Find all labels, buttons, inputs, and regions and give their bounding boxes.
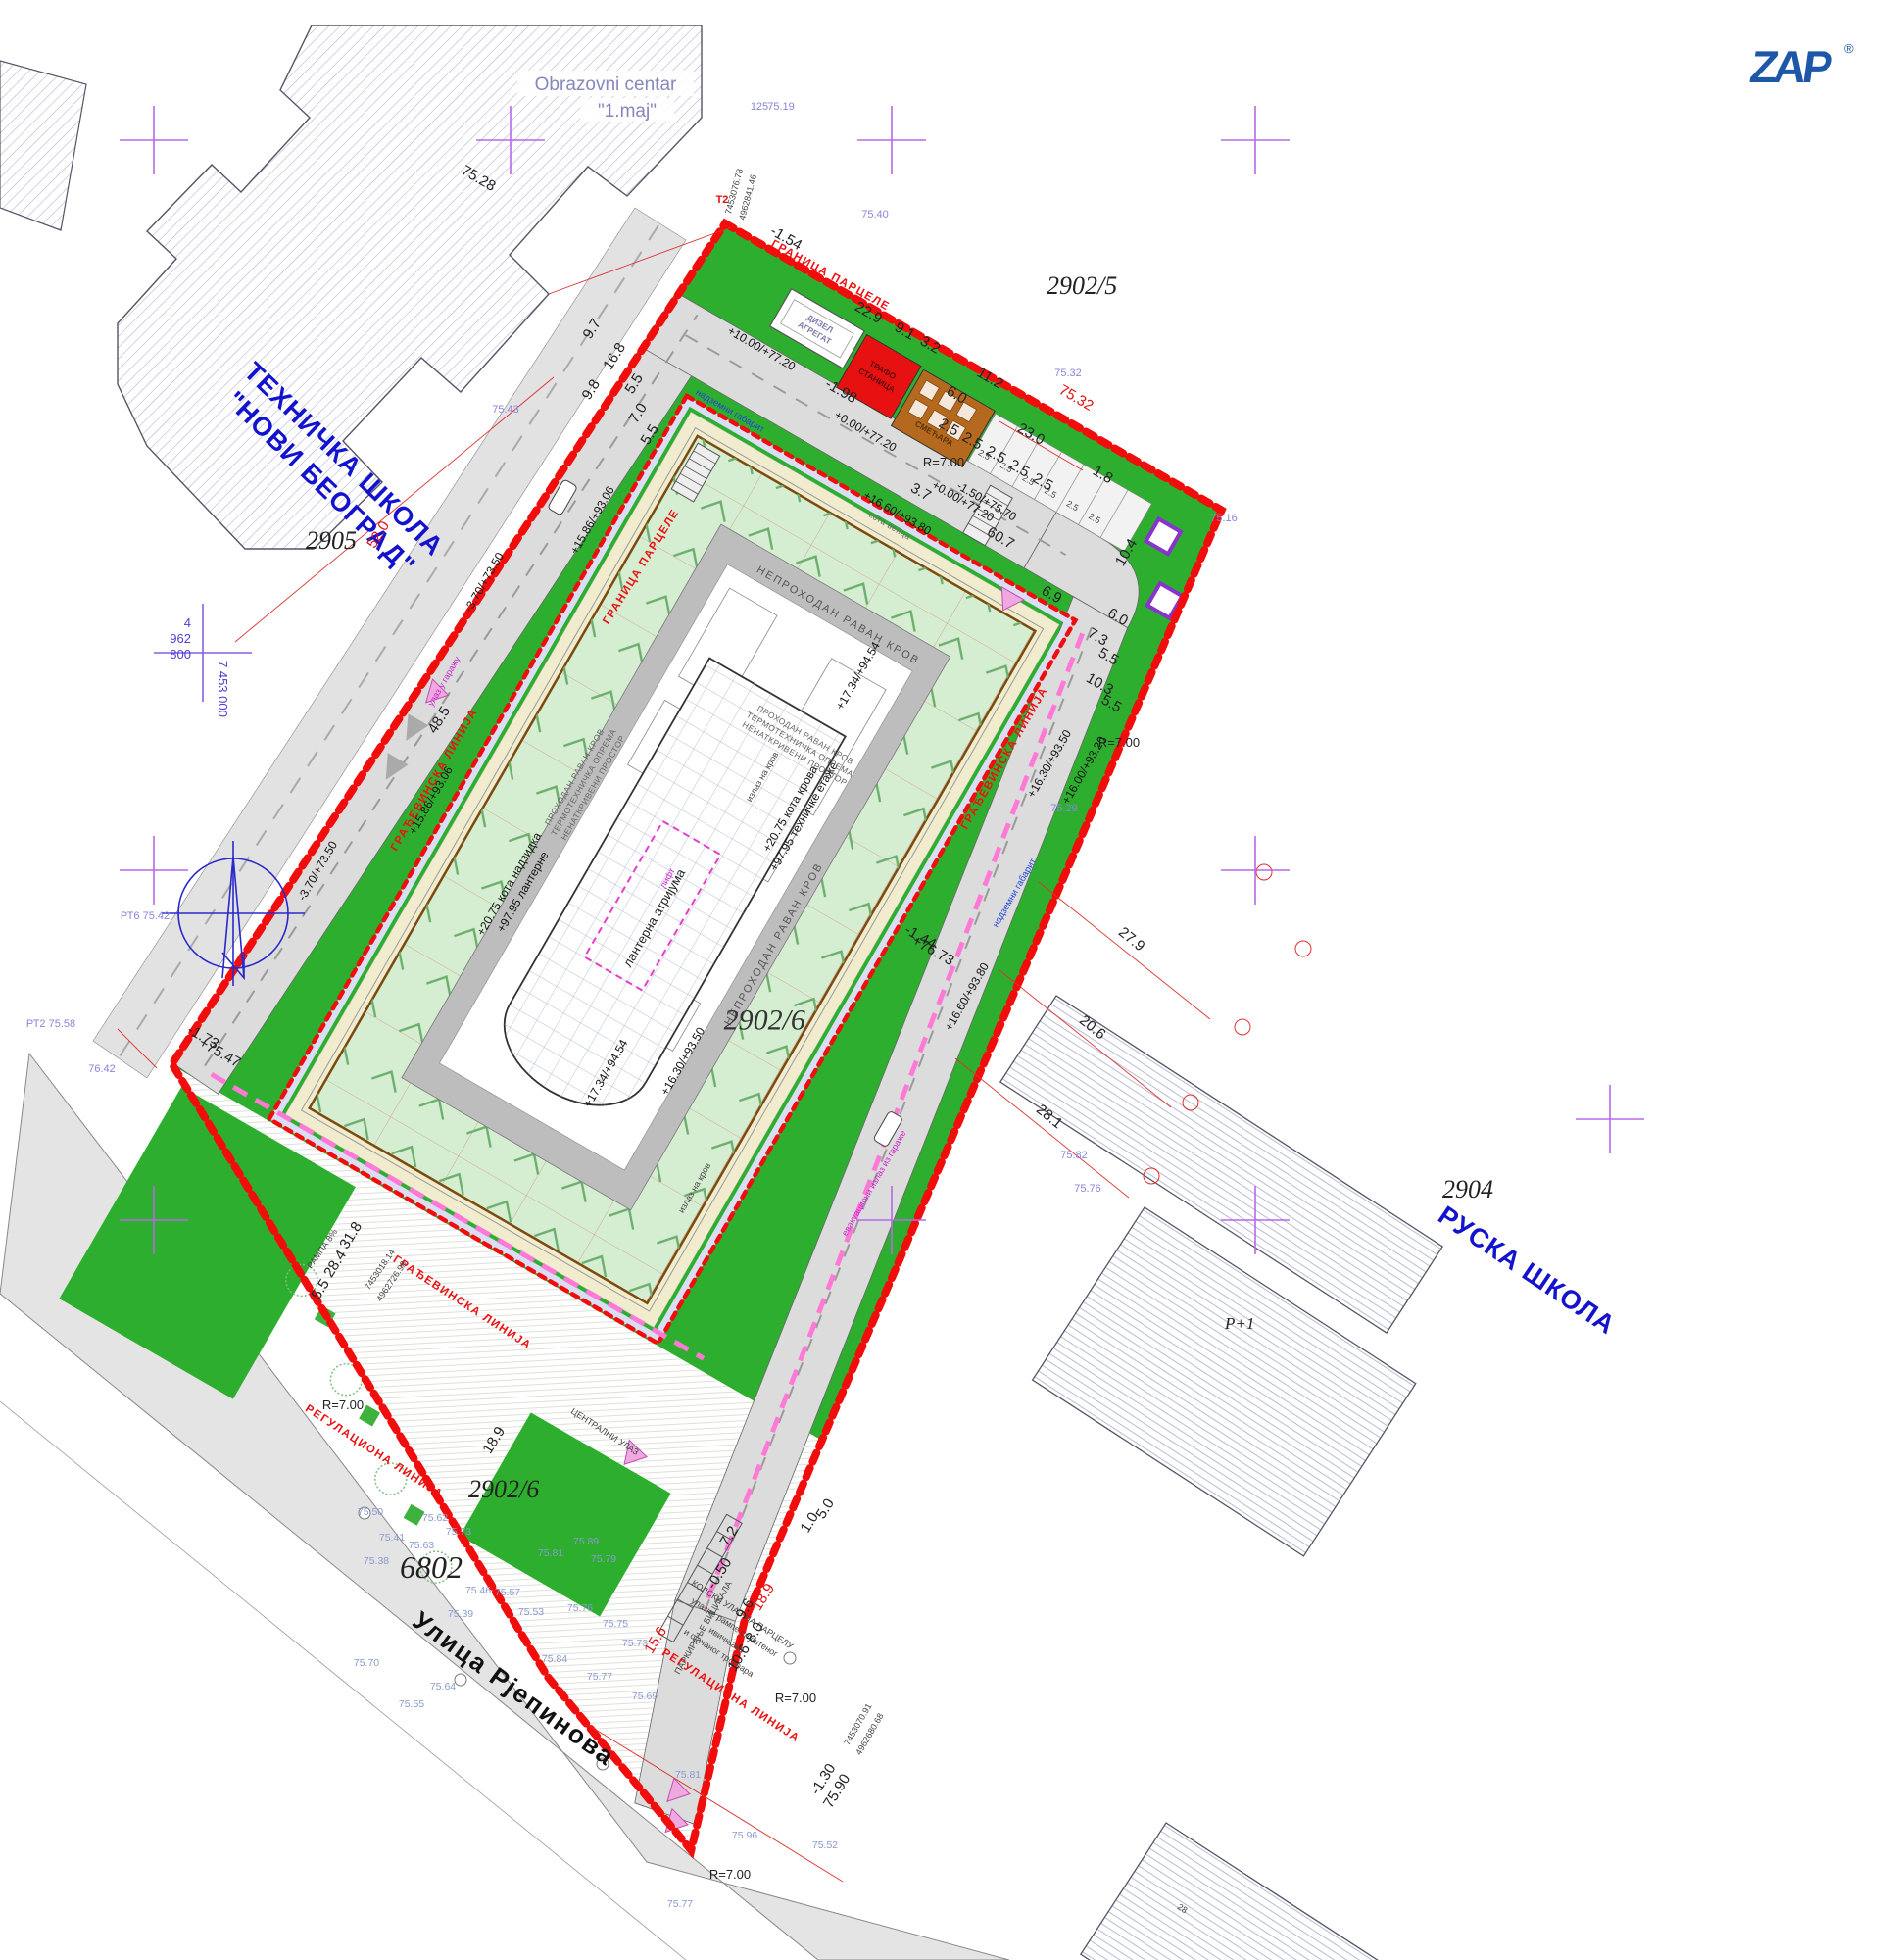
plan-annotation: 75.40 [861,209,889,220]
nw-building-label: Obrazovni centar [535,74,677,95]
plan-annotation: R=7.00 [923,455,964,469]
parcel-number-2902-6: 2902/6 [468,1475,539,1503]
plan-annotation: 75.63 [409,1540,434,1551]
plan-annotation: 75.55 [399,1698,424,1710]
russian-school-label-group: РУСКА ШКОЛА [1433,1200,1621,1341]
plan-annotation: 75.50 [358,1506,383,1518]
parcel-number-2905: 2905 [306,526,357,555]
plan-annotation: 76.42 [88,1063,116,1075]
plan-annotation: 75.43 [492,404,519,416]
coordinate-label: 4 [184,615,191,630]
survey-cross-icon [857,106,926,174]
plan-annotation: 75.89 [573,1536,599,1547]
coordinate-label-rotated: 7 453 000 [216,661,230,717]
plan-annotation: 125 [751,101,768,113]
plan-annotation: 75.38 [364,1555,389,1567]
survey-cross-icon [1221,106,1290,174]
numbered-node-icon [1256,864,1272,880]
russian-school-buildings [1000,996,1442,1960]
plan-annotation: 75.62 [422,1512,448,1524]
parcel-number-2904: 2904 [1442,1175,1493,1203]
plan-annotation: 75.75 [603,1618,628,1630]
parcel-number-p1: P+1 [1224,1314,1254,1333]
plan-annotation: 75.19 [767,101,795,113]
coordinate-cross-lines [154,604,252,702]
plan-annotation: 75.77 [587,1671,612,1683]
plan-annotation: 75.64 [430,1681,456,1692]
plan-annotation: 75.32 [1054,367,1082,379]
dimension-line [1039,882,1210,1019]
plan-annotation: 75.96 [732,1830,757,1841]
plan-annotation: 75.81 [675,1769,701,1781]
coordinate-label: 800 [170,647,191,661]
coordinate-cross: 4 962 800 7 453 000 [154,604,252,717]
plan-annotation: 75.16 [1210,513,1238,524]
manhole-icon [455,1674,466,1686]
plan-annotation: 75.81 [538,1547,563,1559]
parcel-number-6802: 6802 [400,1549,463,1585]
plan-annotation: 75.46 [465,1585,491,1596]
site-plan-drawing: Obrazovni centar "1.maj" [0,0,1900,1960]
numbered-node-icon [1295,941,1311,956]
zap-logo-text: ZAP [1747,41,1835,92]
coordinate-label: 962 [170,631,191,646]
plan-annotation: 75.82 [1060,1150,1088,1161]
plan-annotation: 75.53 [518,1606,544,1618]
plan-annotation: 75.84 [542,1653,567,1665]
plan-annotation: 75.70 [354,1657,379,1669]
plan-annotation: 75.39 [448,1608,473,1620]
plan-annotation: 2902/6 [724,1004,805,1036]
survey-cross-icon [120,836,188,905]
plan-annotation: R=7.00 [775,1690,816,1705]
plan-annotation: 27.9 [1115,924,1147,955]
plan-annotation: 75.32 [1056,381,1096,414]
numbered-node-icon [1235,1019,1250,1035]
plan-annotation: 75.73 [446,1526,471,1538]
plan-annotation: 75.41 [379,1532,405,1543]
plan-annotation: R=7.00 [322,1397,364,1412]
plan-annotation: РТ2 75.58 [26,1018,75,1030]
manhole-icon [784,1652,796,1664]
plan-annotation: 75.52 [812,1839,838,1851]
plan-annotation: R=7.00 [709,1867,751,1882]
plan-annotation: 75.79 [591,1553,616,1565]
survey-cross-icon [120,106,188,174]
zap-logo-registered-icon: ® [1844,41,1854,56]
plan-annotation: R=7.00 [1098,735,1140,750]
plan-annotation: 75.77 [667,1898,693,1910]
survey-cross-icon [1576,1085,1644,1153]
plan-annotation: 75.69 [632,1690,658,1702]
survey-cross-icon [1221,836,1290,905]
plan-annotation: 75.57 [495,1587,520,1598]
se-building [1081,1823,1413,1960]
plan-annotation: 75.29 [1050,803,1078,814]
zap-logo: ZAP ® [1747,41,1854,92]
nw-building-sublabel: "1.maj" [598,101,657,122]
plan-annotation: 75.76 [1074,1183,1101,1195]
plan-annotation: РТ6 75.42 [121,910,170,922]
site-plan-page: Obrazovni centar "1.maj" [0,0,1900,1960]
nw-building-fragment [0,61,86,230]
russian-school-label: РУСКА ШКОЛА [1433,1200,1621,1341]
parcel-number-2902-5: 2902/5 [1047,271,1117,300]
plan-annotation: 75.76 [567,1602,593,1614]
